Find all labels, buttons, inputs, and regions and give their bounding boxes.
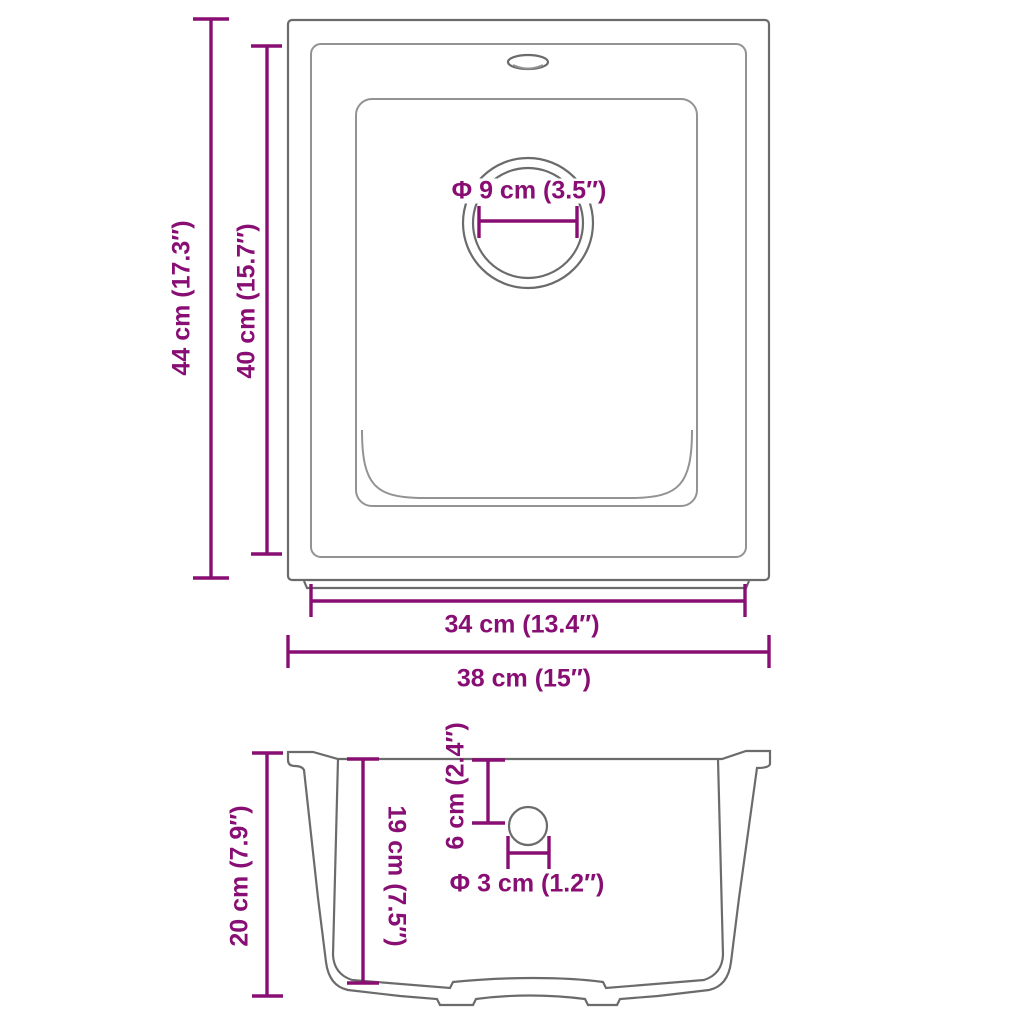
top-view-base-lip bbox=[304, 581, 749, 588]
top-view-bowl-floor-curve bbox=[362, 430, 692, 498]
label-inner-height-40cm: 40 cm (15.7″) bbox=[235, 223, 260, 378]
label-inner-width-34cm: 34 cm (13.4″) bbox=[444, 613, 599, 638]
label-drain-diameter-9cm: Φ 9 cm (3.5″) bbox=[449, 179, 610, 204]
label-drain-diameter-3cm: Φ 3 cm (1.2″) bbox=[450, 872, 605, 897]
label-side-depth-19cm: 19 cm (7.5″) bbox=[384, 805, 409, 946]
label-outer-height-44cm: 44 cm (17.3″) bbox=[170, 220, 195, 375]
dim-line-44cm bbox=[193, 19, 229, 578]
dim-line-19cm bbox=[347, 759, 379, 983]
label-outer-width-38cm: 38 cm (15″) bbox=[457, 667, 591, 692]
side-view-drain-hole bbox=[509, 807, 547, 845]
dimension-lines bbox=[193, 19, 769, 996]
top-view-bowl-rect bbox=[356, 99, 697, 506]
dim-line-drain-3cm bbox=[508, 836, 549, 869]
top-view-rim-rect bbox=[311, 44, 746, 557]
top-view-outline bbox=[288, 20, 769, 588]
sink-dimension-diagram: 44 cm (17.3″) 40 cm (15.7″) Φ 9 cm (3.5″… bbox=[0, 0, 1024, 1024]
dim-line-20cm bbox=[252, 753, 283, 996]
dim-line-38cm bbox=[288, 635, 769, 668]
dim-line-6cm bbox=[472, 760, 505, 823]
faucet-hole bbox=[508, 55, 548, 69]
dim-line-drain-9cm bbox=[479, 206, 577, 238]
label-drain-offset-6cm: 6 cm (2.4″) bbox=[444, 722, 469, 849]
label-side-height-20cm: 20 cm (7.9″) bbox=[228, 805, 253, 946]
